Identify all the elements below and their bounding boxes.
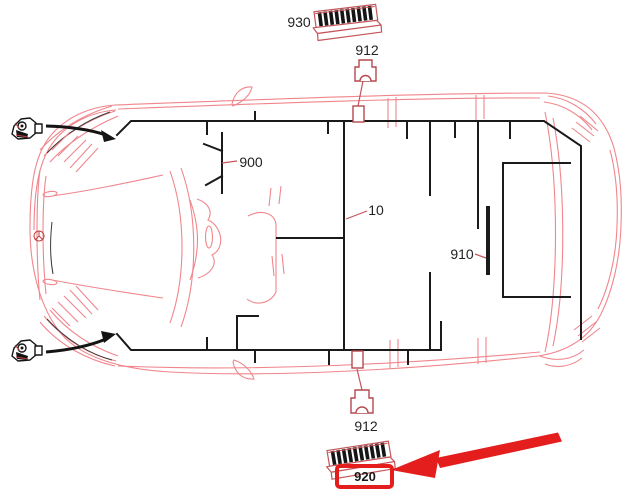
socket-912-bottom <box>352 351 363 368</box>
parts-diagram: 930 912 900 10 910 912 920 <box>0 0 623 492</box>
leader-10 <box>346 211 367 219</box>
callout-930[interactable]: 930 <box>287 14 311 30</box>
plug-912-top-icon <box>355 60 376 81</box>
harness-branch-900 <box>204 133 222 193</box>
leader-900 <box>222 161 237 163</box>
callout-910[interactable]: 910 <box>450 246 474 262</box>
leader-910 <box>475 254 486 258</box>
wiring-harness <box>117 112 581 364</box>
socket-912-top <box>353 106 364 122</box>
leader-912-top <box>358 81 363 106</box>
terminal-block-930-icon <box>312 4 382 41</box>
plug-912-bottom-icon <box>351 390 373 413</box>
callout-10[interactable]: 10 <box>368 202 384 218</box>
clip-connector-top-icon <box>12 118 42 139</box>
callout-900[interactable]: 900 <box>239 154 263 170</box>
leader-912-bottom <box>357 369 362 390</box>
highlight-arrow <box>391 433 562 479</box>
callout-912-bottom[interactable]: 912 <box>354 418 378 434</box>
callout-920-highlighted[interactable]: 920 <box>354 469 376 484</box>
callout-912-top[interactable]: 912 <box>355 42 379 58</box>
mirror-top <box>232 87 252 106</box>
mirror-bottom <box>233 360 254 379</box>
clip-connector-bottom-icon <box>12 340 42 361</box>
pointer-arrow-bottom <box>46 331 116 352</box>
